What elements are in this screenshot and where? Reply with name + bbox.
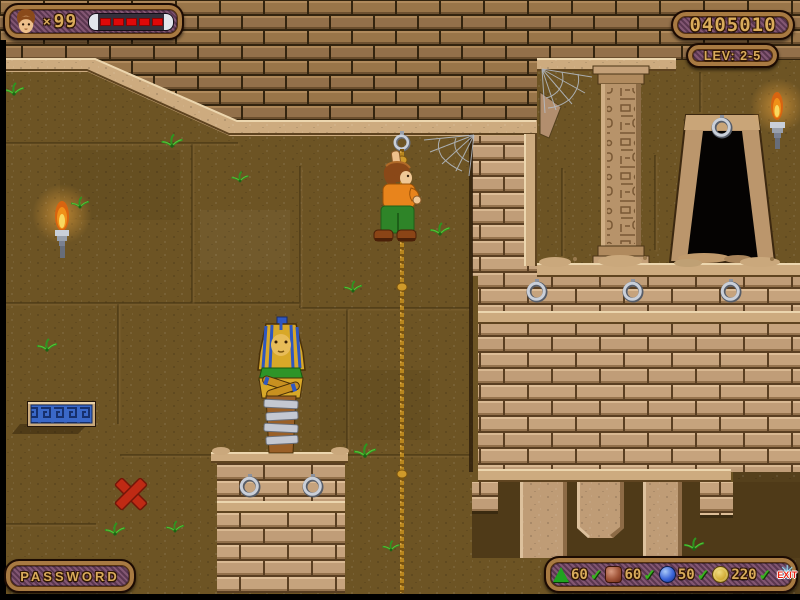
red-gem-count: 60	[624, 567, 641, 583]
green-gem-count: 60	[571, 567, 588, 583]
pillar	[520, 482, 567, 558]
game-scene	[0, 0, 800, 600]
green-gem-icon	[553, 567, 569, 582]
check-icon: ✓	[697, 566, 710, 584]
coin-count: 220	[731, 567, 756, 583]
exit-indicator: ✳ EXIT	[777, 564, 800, 586]
lives-panel: × 99	[3, 3, 184, 40]
level-panel: LEV: 2-5	[686, 43, 779, 68]
red-gem-icon	[605, 566, 622, 583]
check-icon: ✓	[590, 566, 603, 584]
score-value: 0405010	[689, 14, 776, 36]
blue-gem-icon	[659, 566, 676, 583]
brick-block	[478, 255, 800, 482]
inventory-panel: 60 ✓ 60 ✓ 50 ✓ 220 ✓ ✳ EXIT	[544, 556, 798, 593]
password-label: PASSWORD	[20, 569, 120, 584]
hanging-pillars	[472, 482, 800, 558]
check-icon: ✓	[759, 566, 772, 584]
dark-doorway	[670, 115, 775, 263]
stone-pedestal	[211, 447, 349, 593]
lives-multiplier: ×	[43, 14, 51, 29]
blue-gem-count: 50	[678, 567, 695, 583]
exit-label: EXIT	[777, 570, 797, 580]
screen-edge-left	[0, 40, 6, 594]
screen-edge-bottom	[0, 594, 800, 600]
level-label: LEV: 2-5	[704, 49, 761, 63]
player-head-icon	[14, 8, 38, 35]
score-panel: 0405010	[671, 10, 795, 40]
check-icon: ✓	[643, 566, 656, 584]
health-bar	[88, 13, 174, 31]
lives-count: 99	[54, 11, 78, 32]
gold-coin-icon	[712, 566, 729, 583]
health-bar-segments	[100, 18, 163, 26]
pillar	[643, 482, 682, 558]
pillar	[577, 482, 624, 538]
password-button[interactable]: PASSWORD	[4, 559, 136, 593]
hieroglyph-column	[593, 66, 649, 266]
